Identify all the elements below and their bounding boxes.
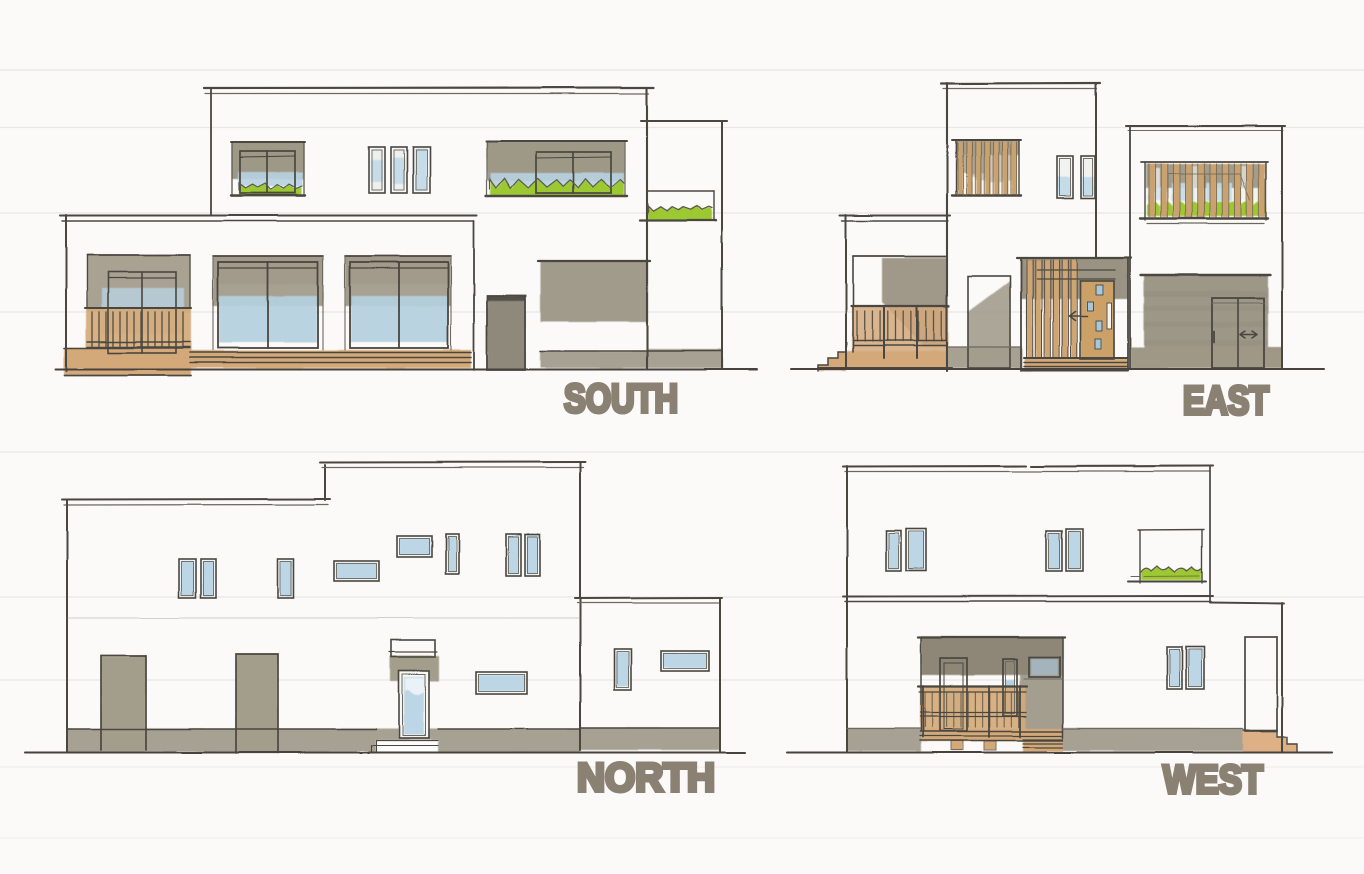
- svg-text:EAST: EAST: [1183, 379, 1269, 423]
- svg-text:NORTH: NORTH: [577, 756, 715, 800]
- svg-text:WEST: WEST: [1163, 758, 1263, 802]
- svg-text:SOUTH: SOUTH: [564, 377, 678, 421]
